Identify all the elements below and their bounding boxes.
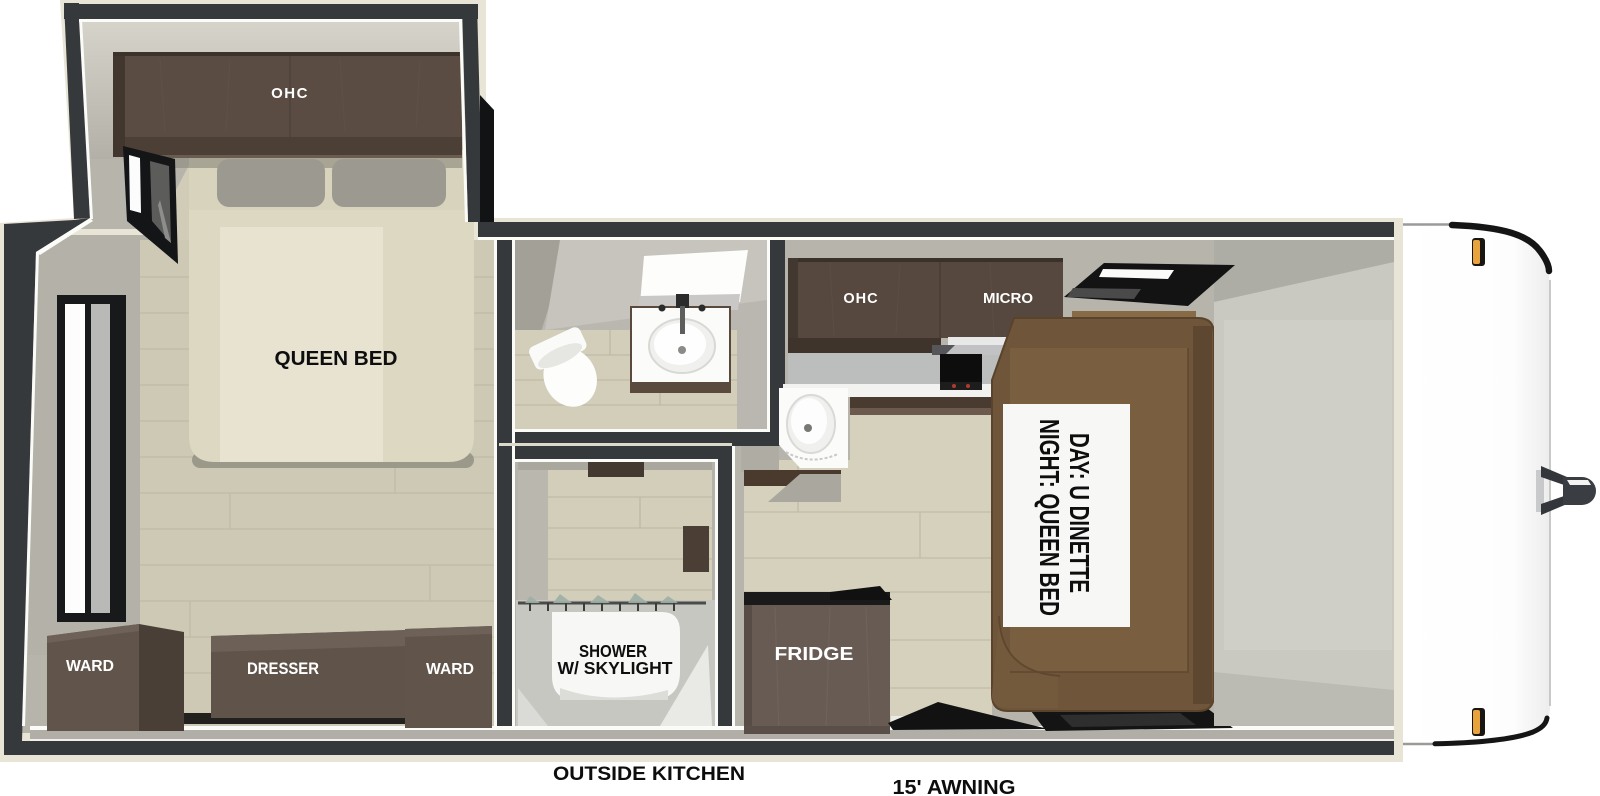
- svg-text:DAY: U DINETTE: DAY: U DINETTE: [1064, 433, 1095, 593]
- svg-text:NIGHT: QUEEN BED: NIGHT: QUEEN BED: [1034, 419, 1065, 616]
- svg-text:DRESSER: DRESSER: [247, 659, 319, 678]
- svg-text:W/ SKYLIGHT: W/ SKYLIGHT: [558, 658, 673, 678]
- svg-text:15' AWNING: 15' AWNING: [893, 777, 1016, 796]
- svg-text:OHC: OHC: [271, 85, 309, 102]
- svg-text:OUTSIDE KITCHEN: OUTSIDE KITCHEN: [553, 763, 745, 785]
- svg-text:OHC: OHC: [843, 291, 878, 307]
- svg-text:WARD: WARD: [66, 658, 114, 675]
- svg-text:MICRO: MICRO: [983, 291, 1033, 307]
- svg-text:FRIDGE: FRIDGE: [775, 644, 854, 664]
- svg-text:WARD: WARD: [426, 661, 474, 678]
- svg-text:QUEEN BED: QUEEN BED: [275, 347, 398, 370]
